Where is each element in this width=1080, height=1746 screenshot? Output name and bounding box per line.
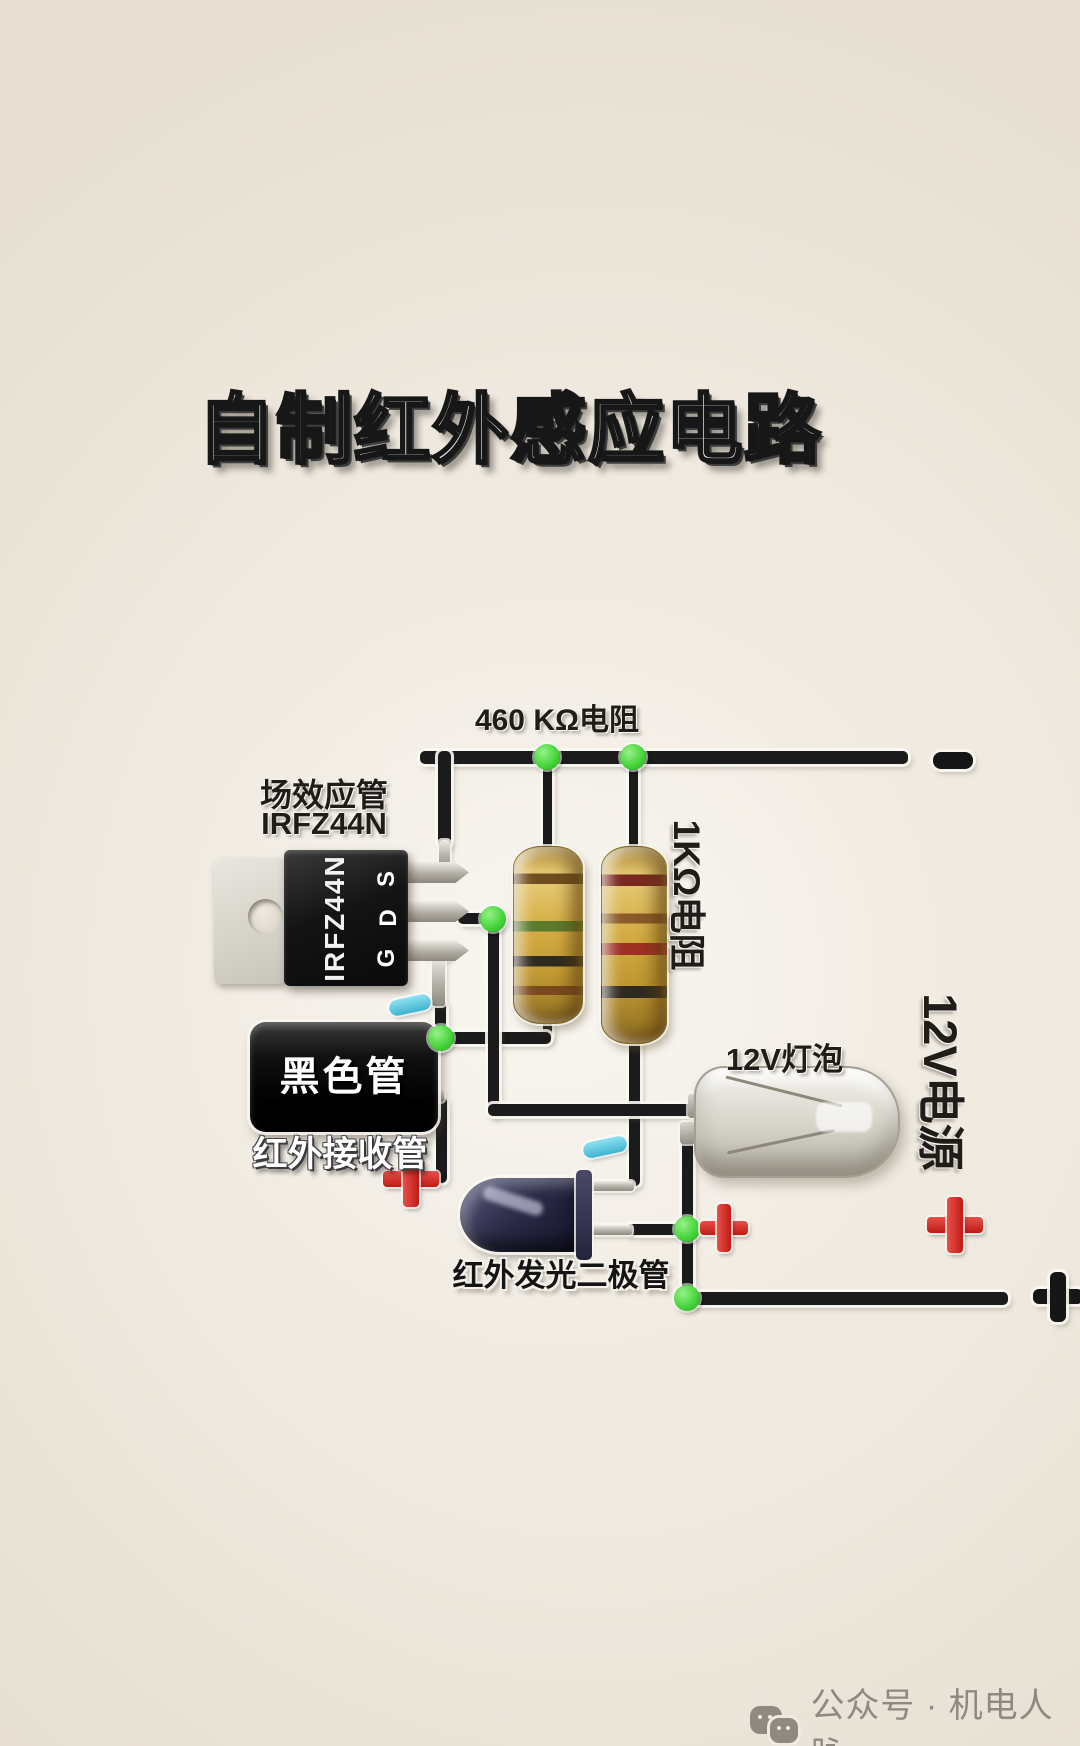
- wire-segment: [438, 751, 451, 847]
- mosfet-part-print: IRFZ44N: [307, 838, 363, 998]
- wechat-icon: [750, 1706, 798, 1746]
- mosfet-pin-label-d: D: [374, 903, 404, 933]
- resistor-460k: [513, 846, 583, 1024]
- label-ir-led: 红外发光二极管: [428, 1250, 694, 1295]
- page-title: 自制红外感应电路: [130, 368, 890, 478]
- watermark-text: 公众号 · 机电人脉: [810, 1678, 1080, 1746]
- junction-dot: [480, 906, 506, 932]
- ir-led-flange: [576, 1170, 592, 1260]
- resistor-1k: [601, 846, 667, 1044]
- junction-dot: [620, 744, 646, 770]
- mosfet-pin-label-g: G: [372, 943, 402, 973]
- ir-receiver-tube: 黑色管: [250, 1022, 438, 1132]
- ir-receiver-tube-label: 黑色管: [250, 1022, 438, 1132]
- watermark: 公众号 · 机电人脉: [750, 1678, 1080, 1746]
- bulb-glass-highlight: [816, 1102, 872, 1132]
- bulb-terminal: [680, 1122, 695, 1144]
- junction-dot: [674, 1216, 700, 1242]
- wire-segment: [543, 760, 552, 850]
- negative-terminal: [933, 752, 973, 769]
- wire-segment: [488, 1104, 698, 1116]
- positive-mark: [700, 1204, 748, 1252]
- junction-dot: [534, 744, 560, 770]
- label-mosfet-part: IRFZ44N: [239, 806, 409, 842]
- wechat-bubble-icon: [770, 1718, 798, 1743]
- label-ir-receiver: 红外接收管: [225, 1126, 455, 1177]
- label-power: 12V电源: [910, 952, 970, 1212]
- wire-segment: [488, 917, 499, 1115]
- label-bulb: 12V灯泡: [712, 1034, 857, 1079]
- poster: 自制红外感应电路 IRFZ44N S D G 黑色管: [0, 0, 1080, 1746]
- mosfet-mounting-hole: [248, 899, 283, 934]
- component-lead: [432, 956, 445, 1006]
- mosfet-pin-label-s: S: [372, 864, 402, 894]
- bulb-12v: [694, 1066, 900, 1178]
- label-resistor-1k: 1KΩ电阻: [661, 785, 711, 1005]
- junction-dot: [428, 1025, 454, 1051]
- wire-segment: [420, 751, 908, 764]
- bulb-filament: [727, 1129, 835, 1155]
- positive-terminal: [1050, 1272, 1066, 1322]
- ir-led-dome: [460, 1178, 582, 1252]
- label-resistor-460k: 460 KΩ电阻: [437, 695, 677, 739]
- wire-segment: [682, 1292, 1008, 1305]
- wire-segment: [629, 760, 638, 850]
